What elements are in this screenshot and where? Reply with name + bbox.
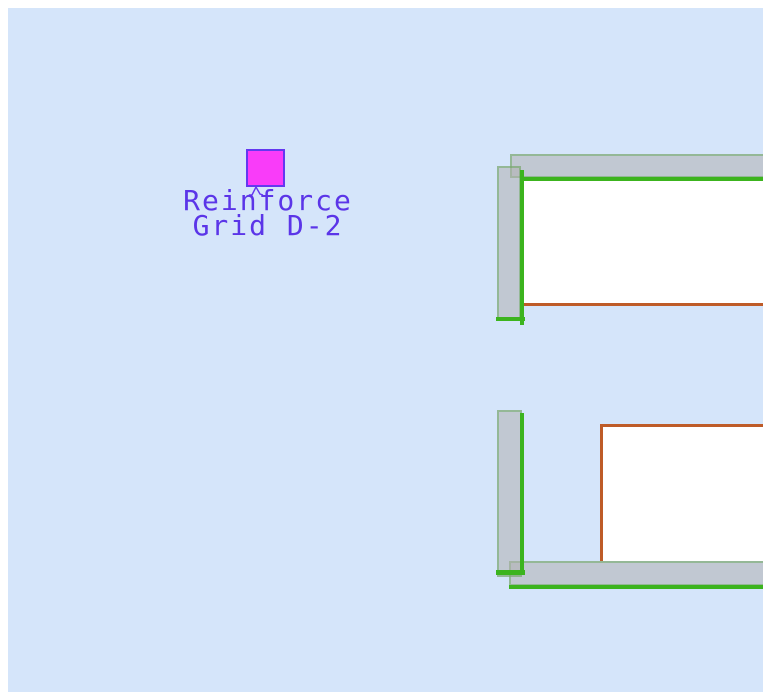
lower-room-area[interactable]	[603, 427, 763, 561]
upper-room-area[interactable]	[523, 181, 763, 303]
lower-vertical-wall[interactable]	[497, 410, 522, 577]
upper-vertical-wall[interactable]	[497, 166, 521, 321]
lower-column-edge-line[interactable]	[520, 413, 524, 574]
lower-room-left-edge[interactable]	[600, 424, 603, 561]
upper-wall-beam-line[interactable]	[521, 177, 763, 181]
label-line-2: Grid D-2	[163, 213, 373, 238]
reinforce-grid-marker[interactable]	[246, 149, 285, 187]
lower-column-end-line[interactable]	[496, 570, 525, 575]
drawing-canvas[interactable]: Reinforce Grid D-2	[8, 8, 763, 692]
reinforce-grid-label[interactable]: Reinforce Grid D-2	[163, 188, 373, 238]
upper-column-end-line[interactable]	[496, 317, 525, 321]
upper-column-edge-line[interactable]	[520, 170, 524, 325]
lower-room-top-edge[interactable]	[600, 424, 763, 427]
upper-horizontal-wall[interactable]	[510, 154, 763, 178]
lower-horizontal-wall[interactable]	[509, 561, 763, 586]
lower-wall-beam-line[interactable]	[509, 585, 763, 589]
upper-room-bottom-edge[interactable]	[524, 303, 763, 306]
